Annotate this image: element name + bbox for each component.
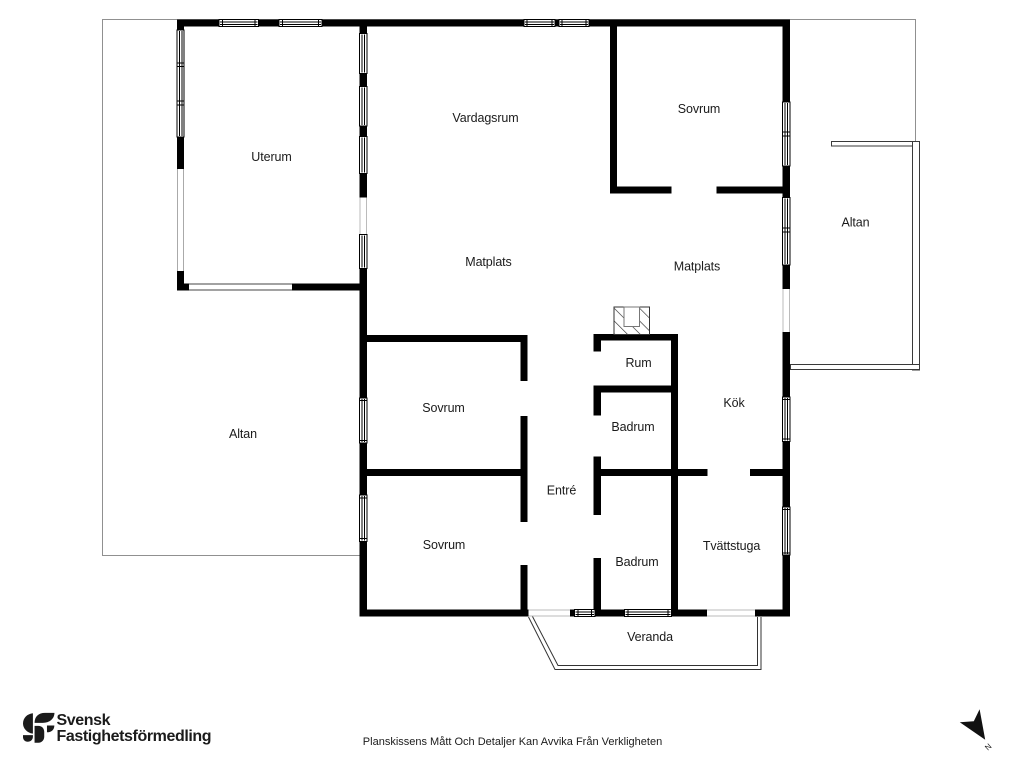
svg-text:N: N — [983, 742, 993, 753]
svg-text:Altan: Altan — [229, 427, 257, 441]
svg-text:Tvättstuga: Tvättstuga — [703, 539, 761, 553]
svg-text:Svensk: Svensk — [57, 712, 111, 729]
svg-text:Altan: Altan — [842, 216, 870, 230]
svg-text:Veranda: Veranda — [627, 630, 673, 644]
svg-text:Vardagsrum: Vardagsrum — [452, 111, 518, 125]
svg-text:Sovrum: Sovrum — [678, 102, 720, 116]
svg-text:Matplats: Matplats — [465, 255, 511, 269]
svg-text:Badrum: Badrum — [611, 420, 654, 434]
svg-text:Matplats: Matplats — [674, 260, 720, 274]
svg-text:Uterum: Uterum — [251, 150, 291, 164]
svg-text:Rum: Rum — [625, 356, 651, 370]
svg-text:Fastighetsförmedling: Fastighetsförmedling — [57, 728, 212, 745]
svg-text:Entré: Entré — [547, 484, 577, 498]
svg-text:Badrum: Badrum — [615, 555, 658, 569]
svg-text:Sovrum: Sovrum — [422, 401, 464, 415]
svg-text:Kök: Kök — [723, 396, 745, 410]
svg-text:Sovrum: Sovrum — [423, 538, 465, 552]
svg-text:Planskissens Mått Och Detaljer: Planskissens Mått Och Detaljer Kan Avvik… — [363, 736, 662, 748]
